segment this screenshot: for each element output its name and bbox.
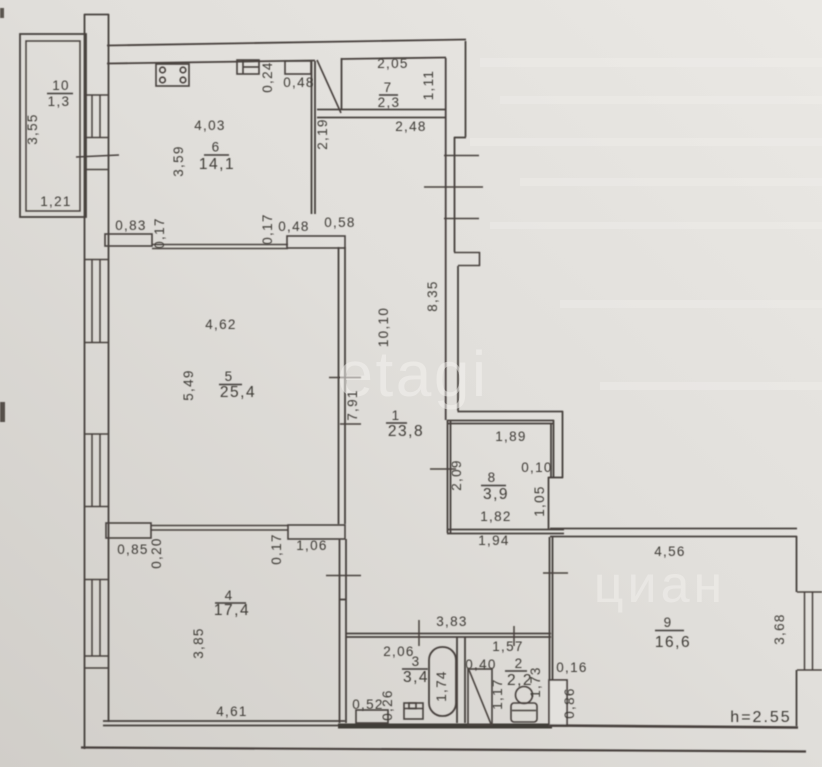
svg-text:23,8: 23,8 <box>388 423 424 440</box>
svg-text:6: 6 <box>212 140 221 155</box>
svg-text:1,57: 1,57 <box>492 639 523 654</box>
svg-text:1,73: 1,73 <box>528 666 543 697</box>
svg-text:1,89: 1,89 <box>495 429 526 444</box>
svg-text:7: 7 <box>384 80 393 95</box>
svg-text:0,20: 0,20 <box>149 537 164 568</box>
svg-text:3,83: 3,83 <box>436 614 467 629</box>
svg-text:10,10: 10,10 <box>376 307 391 347</box>
svg-text:0,26: 0,26 <box>380 689 395 720</box>
svg-text:h=2.55: h=2.55 <box>730 709 791 726</box>
svg-text:3,55: 3,55 <box>25 113 40 144</box>
svg-text:0,17: 0,17 <box>260 213 275 244</box>
svg-text:16,6: 16,6 <box>655 634 691 651</box>
svg-text:0,48: 0,48 <box>283 75 314 90</box>
svg-text:2,3: 2,3 <box>378 95 401 110</box>
svg-text:1,05: 1,05 <box>532 485 547 516</box>
svg-text:0,17: 0,17 <box>152 217 167 248</box>
svg-text:2,48: 2,48 <box>395 119 426 134</box>
svg-text:2: 2 <box>515 656 524 671</box>
svg-text:0,85: 0,85 <box>117 542 148 557</box>
svg-text:14,1: 14,1 <box>199 156 235 173</box>
svg-text:4,56: 4,56 <box>654 544 685 559</box>
svg-text:1,74: 1,74 <box>434 670 449 701</box>
svg-text:4,62: 4,62 <box>205 317 236 332</box>
svg-text:4,61: 4,61 <box>216 704 247 719</box>
svg-text:3,9: 3,9 <box>483 486 509 503</box>
svg-text:2,19: 2,19 <box>315 118 330 149</box>
svg-text:9: 9 <box>664 615 673 630</box>
svg-text:7,91: 7,91 <box>345 389 360 420</box>
svg-text:1,21: 1,21 <box>40 194 71 209</box>
svg-text:3,68: 3,68 <box>772 613 787 644</box>
svg-text:3,4: 3,4 <box>403 669 429 686</box>
svg-text:5: 5 <box>225 369 234 384</box>
svg-text:10: 10 <box>52 78 70 93</box>
svg-text:3,59: 3,59 <box>171 145 186 176</box>
svg-text:3,85: 3,85 <box>191 627 206 658</box>
svg-text:3: 3 <box>412 654 421 669</box>
svg-text:0,10: 0,10 <box>521 460 552 475</box>
svg-text:0,83: 0,83 <box>115 218 146 233</box>
svg-text:etagi: etagi <box>337 338 488 410</box>
svg-text:2,05: 2,05 <box>377 56 408 71</box>
svg-text:0,24: 0,24 <box>260 61 275 92</box>
svg-text:1,17: 1,17 <box>490 678 505 709</box>
svg-text:17,4: 17,4 <box>214 602 250 619</box>
svg-text:циан: циан <box>594 556 726 614</box>
svg-text:4,03: 4,03 <box>194 118 225 133</box>
svg-text:25,4: 25,4 <box>220 384 256 401</box>
svg-text:0,16: 0,16 <box>556 660 587 675</box>
svg-text:1,06: 1,06 <box>296 538 327 553</box>
svg-text:1,3: 1,3 <box>48 94 71 109</box>
svg-text:4: 4 <box>225 588 234 603</box>
svg-text:1,94: 1,94 <box>478 533 509 548</box>
svg-text:8: 8 <box>488 470 497 485</box>
svg-text:1,82: 1,82 <box>480 509 511 524</box>
svg-text:2,06: 2,06 <box>383 644 414 659</box>
svg-text:5,49: 5,49 <box>181 369 196 400</box>
svg-text:0,17: 0,17 <box>269 533 284 564</box>
svg-text:8,35: 8,35 <box>425 280 440 311</box>
svg-text:1: 1 <box>392 408 401 423</box>
svg-text:0,40: 0,40 <box>465 657 496 672</box>
svg-text:2,09: 2,09 <box>449 459 464 490</box>
svg-text:0,86: 0,86 <box>562 687 577 718</box>
svg-text:1,11: 1,11 <box>421 70 436 100</box>
svg-text:0,58: 0,58 <box>324 215 355 230</box>
svg-text:0,48: 0,48 <box>278 219 309 234</box>
